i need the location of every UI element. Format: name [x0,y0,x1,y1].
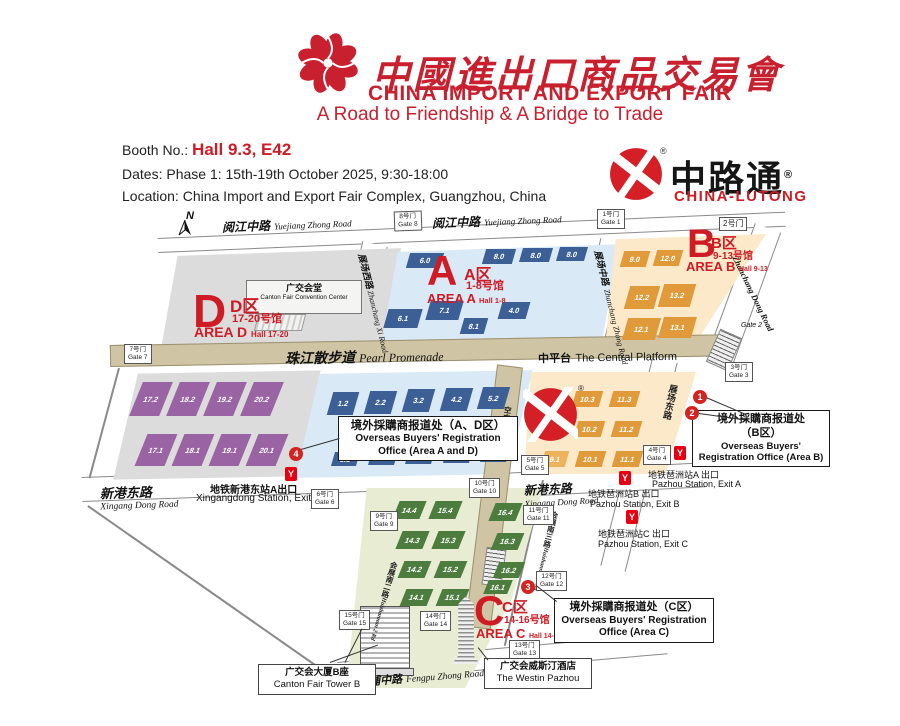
gate-1: 1号门Gate 1 [597,209,625,229]
marker-3: 3 [521,580,535,594]
booth-marker-reg: ® [578,384,584,393]
hall-block: 8.1 [460,318,489,334]
central-platform-label: 中平台 The Central Platform [538,347,677,367]
map-boundary-line [88,505,351,690]
yuejiang-cn-2: 阅江中路 [432,215,481,231]
hall-block: 11.2 [611,421,643,437]
marker-2: 2 [685,406,699,420]
yuejiang-en-2: Yuejiang Zhong Road [484,214,562,227]
brand-en-name: CHINA-LUTONG [674,188,808,205]
xingang-road-label-west: 新港东路 Xingang Dong Road [100,481,179,513]
hall-block: 13.2 [658,284,697,307]
marker-1: 1 [693,390,707,404]
pazhou-a-en: Pazhou Station, Exit A [652,479,741,489]
hall-block: 6.1 [383,309,422,328]
marker-4: 4 [289,447,303,461]
hall-block: 10.1 [575,451,607,467]
gate-5: 5号门Gate 5 [521,455,549,475]
canton-fair-map-flyer: 中國進出口商品交易會 CHINA IMPORT AND EXPORT FAIR … [0,0,900,726]
pazhou-b-en: Pazhou Station, Exit B [590,499,680,509]
fair-en-title: CHINA IMPORT AND EXPORT FAIR [368,82,732,106]
westin-label: 广交会威斯汀酒店 The Westin Pazhou [484,658,592,689]
north-arrow-icon [176,220,192,241]
map-boundary-line-2 [89,368,120,479]
yuejiang-en: Yuejiang Zhong Road [274,218,352,231]
brand-reg-mark: ® [660,146,667,156]
registration-office-ad: 境外採購商报道处（A、D区） Overseas Buyers' Registra… [338,416,518,461]
booth-location-marker-icon [523,387,578,442]
gate-10: 10号门Gate 10 [469,478,500,498]
dates-line: Dates: Phase 1: 15th-19th October 2025, … [122,166,448,182]
hall-block: 9.0 [620,251,651,267]
fair-flower-logo-icon [293,30,363,96]
fair-slogan: A Road to Friendship & A Bridge to Trade [295,104,685,126]
venue-map: N 阅江中路 Yuejiang Zhong Road [0,208,900,726]
area-d-name: AREA D Hall 17-20 [194,324,288,340]
gate-13: 13号门Gate 13 [509,640,540,660]
gate-7: 7号门Gate 7 [124,344,152,364]
metro-icon-pazhou-c: Y [626,510,638,524]
hall-block: 8.0 [519,248,553,262]
hall-block: 10.2 [574,421,606,437]
hall-block: 13.1 [658,317,697,338]
gate-2: 2号门 [719,217,747,231]
xingangdong-exit-en: Xingangdong Station, Exit A [196,493,320,504]
metro-icon-xingangdong: Y [285,467,297,481]
area-c-halls: 14-16号馆 [504,611,550,626]
registration-office-c: 境外採購商报道处（C区） Overseas Buyers' Registrati… [554,598,714,643]
area-a-letter: A [427,250,457,292]
area-c-name: AREA C Hall 14-16 [476,626,562,641]
booth-value: Hall 9.3, E42 [192,140,291,159]
brand-reg-mark-2: ® [784,169,794,181]
yuejiang-cn: 阅江中路 [222,219,271,235]
location-line: Location: China Import and Export Fair C… [122,188,546,204]
registration-office-b: 境外採購商报道处 （B区） Overseas Buyers' Registrat… [692,410,830,467]
gate-11: 11号门Gate 11 [523,505,554,525]
metro-icon-pazhou-b: Y [619,471,631,485]
gate-14: 14号门Gate 14 [420,611,451,631]
hall-block: 12.0 [653,250,684,266]
booth-line: Booth No.: Hall 9.3, E42 [122,140,291,160]
gate-8: 8号门Gate 8 [394,211,422,232]
gate-9: 9号门Gate 9 [370,511,398,531]
pazhou-c-en: Pazhou Station, Exit C [598,539,688,549]
booth-label: Booth No.: [122,142,188,158]
canton-fair-tower-b-label: 广交会大厦B座 Canton Fair Tower B [258,664,376,695]
hall-block: 11.3 [609,391,641,407]
promenade-label: 珠江散步道 Pearl Promenade [285,346,444,369]
china-lutong-logo-icon [609,147,663,201]
convention-center: 广交会堂 Canton Fair Convention Center [246,280,362,314]
hall-block: 8.0 [556,247,588,261]
gate-3: 3号门Gate 3 [725,362,753,382]
gate-6: 6号门Gate 6 [311,489,339,509]
gate-15: 15号门Gate 15 [339,610,370,630]
area-a-name: AREA A Hall 1-8 [427,291,506,306]
gate-4: 4号门Gate 4 [643,445,671,465]
area-b-name: AREA B Hall 9-13 [686,259,768,274]
hall-block: 11.1 [612,451,644,467]
metro-icon-pazhou-a: Y [674,446,686,460]
